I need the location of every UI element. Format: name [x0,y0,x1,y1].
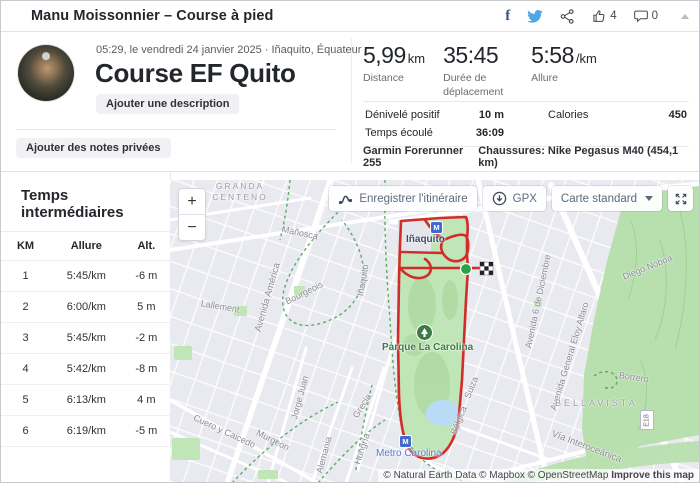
gpx-download-button[interactable]: GPX [483,186,546,211]
distance-label: Distance [363,72,425,86]
share-icon [560,9,575,24]
metro-station-icon: M [430,221,443,234]
zoom-out-button[interactable]: − [179,215,205,240]
avatar[interactable] [18,45,74,101]
route-map[interactable]: GRANDA CENTENO Mañosca Avenida América L… [170,180,699,482]
activity-summary-card: 05:29, le vendredi 24 janvier 2025 · Iña… [1,32,699,171]
map-attribution: © Natural Earth Data © Mapbox © OpenStre… [378,469,699,482]
park-tree-icon [416,324,433,341]
gear-row: Garmin Forerunner 255 Chaussures: Nike P… [363,145,689,169]
social-toolbar: f 4 0 [505,1,689,31]
stat-calories: Calories450 [546,106,689,124]
road-shield-e18: E18 [640,410,654,430]
stat-moving-time: 35:45 Durée de déplacement [443,42,513,99]
distance-unit: km [408,51,425,66]
map-style-selector[interactable]: Carte standard [552,186,662,211]
kudos-count: 4 [610,10,616,22]
chevron-down-icon [645,196,653,201]
pace-value: 5:58 [531,42,574,68]
finish-flag-icon [480,262,493,275]
activity-page: Manu Moissonnier – Course à pied f 4 0 0… [0,0,700,483]
moving-time-value: 35:45 [443,42,498,68]
fullscreen-icon [674,192,688,206]
splits-panel: Temps intermédiaires KM Allure Alt. 15:4… [1,172,171,482]
add-private-notes-button[interactable]: Ajouter des notes privées [16,138,171,158]
col-pace: Allure [50,232,123,261]
split-row[interactable]: 45:42/km-8 m [1,354,170,385]
save-route-button[interactable]: Enregistrer l'itinéraire [329,186,476,211]
stat-distance: 5,99km Distance [363,42,425,99]
zoom-in-button[interactable]: + [179,189,205,215]
pace-label: Allure [531,72,597,86]
facebook-icon: f [505,9,510,24]
split-row[interactable]: 26:00/km5 m [1,292,170,323]
page-title: Manu Moissonnier – Course à pied [31,8,274,24]
splits-header-row: KM Allure Alt. [1,232,170,261]
collapse-caret-icon[interactable] [681,14,689,19]
distance-value: 5,99 [363,42,406,68]
activity-datetime-location: 05:29, le vendredi 24 janvier 2025 · Iña… [96,44,361,56]
add-description-button[interactable]: Ajouter une description [96,94,239,114]
split-row[interactable]: 15:45/km-6 m [1,261,170,292]
header-bar: Manu Moissonnier – Course à pied f 4 0 [1,1,699,32]
share-button[interactable] [560,9,575,24]
stat-elevation: Dénivelé positif10 m [363,106,506,124]
fullscreen-button[interactable] [668,186,693,211]
col-km: KM [1,232,50,261]
divider [16,129,336,130]
moving-time-label: Durée de déplacement [443,72,513,99]
activity-title: Course EF Quito [95,58,296,89]
download-icon [492,191,507,206]
map-toolbar: Enregistrer l'itinéraire GPX Carte stand… [329,186,693,211]
stat-elapsed-time: Temps écoulé36:09 [363,124,506,142]
comments-count: 0 [652,10,658,22]
facebook-share-button[interactable]: f [505,9,510,24]
stat-pace: 5:58/km Allure [531,42,597,99]
thumbs-up-icon [592,9,606,23]
splits-table: KM Allure Alt. 15:45/km-6 m 26:00/km5 m … [1,232,170,447]
split-row[interactable]: 66:19/km-5 m [1,416,170,447]
kudos-button[interactable]: 4 [592,9,616,23]
primary-stats: 5,99km Distance 35:45 Durée de déplaceme… [353,32,699,99]
twitter-share-button[interactable] [527,10,543,23]
twitter-icon [527,10,543,23]
route-icon [338,192,353,206]
col-alt: Alt. [123,232,170,261]
pace-unit: /km [576,51,597,66]
start-marker [461,264,472,275]
metro-station-icon: M [399,435,412,448]
comments-button[interactable]: 0 [634,10,658,23]
device-name: Garmin Forerunner 255 [363,145,478,169]
attribution-credits[interactable]: © Natural Earth Data © Mapbox © OpenStre… [383,470,611,481]
divider [351,38,352,163]
improve-map-link[interactable]: Improve this map [611,470,694,481]
bottom-section: Temps intermédiaires KM Allure Alt. 15:4… [1,171,699,482]
split-row[interactable]: 56:13/km4 m [1,385,170,416]
comment-icon [634,10,648,23]
stats-panel: 5,99km Distance 35:45 Durée de déplaceme… [353,32,699,171]
splits-title: Temps intermédiaires [1,172,170,232]
map-zoom-control: + − [178,188,206,241]
shoes-name: Chaussures: Nike Pegasus M40 (454,1 km) [478,145,689,169]
split-row[interactable]: 35:45/km-2 m [1,323,170,354]
secondary-stats: Dénivelé positif10 m Calories450 Temps é… [363,101,689,147]
